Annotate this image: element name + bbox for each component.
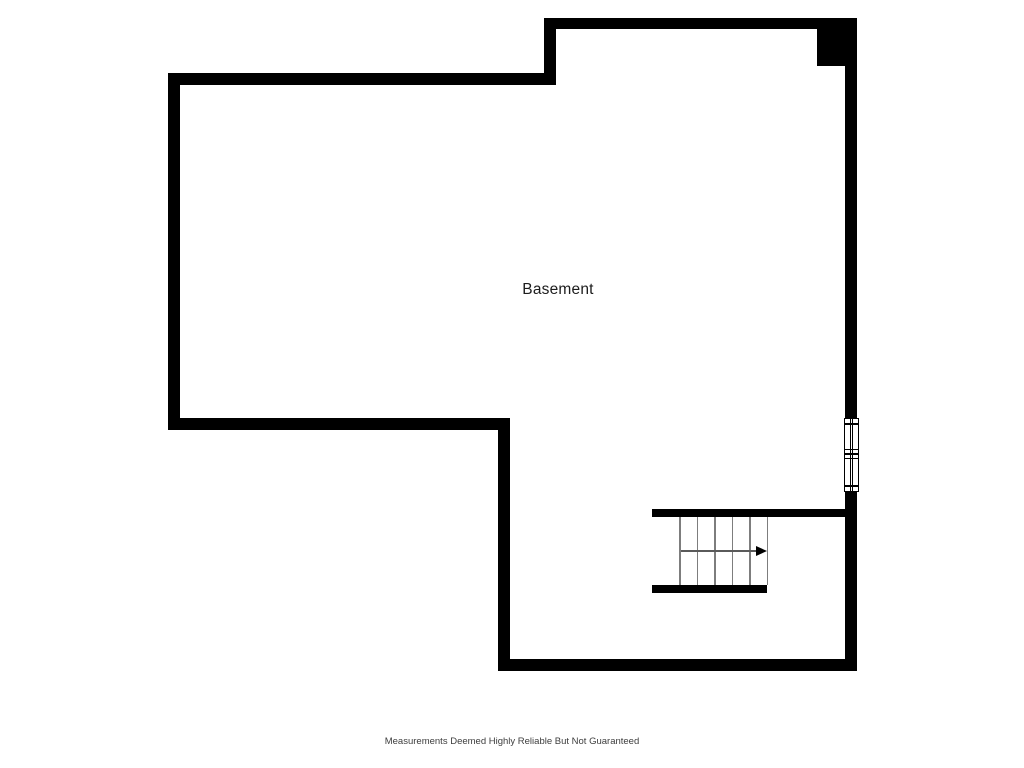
stair-wall-top [652,509,845,517]
disclaimer-text: Measurements Deemed Highly Reliable But … [0,736,1024,747]
window-rail [845,485,858,487]
stair-direction-arrow-line [681,550,757,552]
window-icon [844,418,859,492]
wall-right-lower [845,492,857,671]
room-label: Basement [458,281,658,299]
wall-top [544,18,857,29]
floorplan-canvas: Basement Measurements Deemed Highly Reli… [0,0,1024,768]
window-glass-line [852,419,853,491]
stair-direction-arrow-icon [756,546,767,556]
wall-mid-horizontal [168,418,510,430]
wall-left [168,73,180,430]
stair-wall-bottom [652,585,767,593]
window-rail [845,449,858,451]
wall-bottom [498,659,857,671]
wall-lower-left [498,418,510,671]
wall-top-left-section [168,73,556,85]
wall-right-upper [845,18,857,419]
window-rail [845,458,858,460]
window-glass-line [850,419,851,491]
window-rail [845,423,858,425]
window-rail [845,453,858,455]
